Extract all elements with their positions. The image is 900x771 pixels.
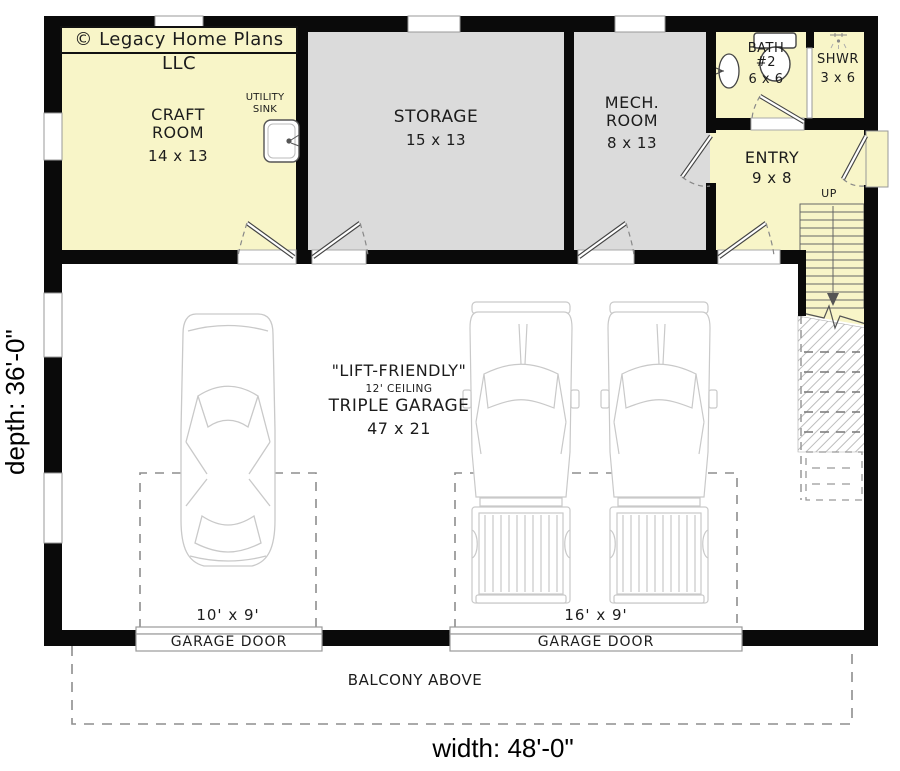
sedan-car: [181, 314, 275, 566]
stairs-break-and-hidden: [798, 306, 866, 500]
floor-plan: © Legacy Home Plans LLC CRAFT ROOM 14 x …: [0, 0, 900, 771]
garage-label: "LIFT-FRIENDLY" 12' CEILING TRIPLE GARAG…: [309, 362, 489, 438]
width-dimension-label: width: 48'-0": [353, 733, 653, 764]
garage-door-right-label: GARAGE DOOR: [450, 634, 742, 651]
entry-label: ENTRY 9 x 8: [722, 149, 822, 188]
garage-door-left-label: GARAGE DOOR: [136, 634, 322, 651]
storage-label: STORAGE 15 x 13: [356, 108, 516, 149]
shower-label: SHWR 3 x 6: [810, 52, 866, 86]
copyright-notice: © Legacy Home Plans LLC: [60, 26, 298, 54]
utility-sink-label: UTILITY SINK: [233, 92, 297, 116]
mech-room-label: MECH. ROOM 8 x 13: [572, 94, 692, 152]
bath-2-label: BATH #2 6 x 6: [733, 42, 799, 87]
utility-sink: [264, 120, 299, 162]
garage-door-left-size: 10' x 9': [168, 606, 288, 624]
balcony-label: BALCONY ABOVE: [335, 672, 495, 689]
side-door-landing: [866, 131, 888, 187]
craft-room-label: CRAFT ROOM 14 x 13: [118, 106, 238, 165]
stairs-up-label: UP: [814, 188, 844, 201]
garage-door-right-size: 16' x 9': [536, 606, 656, 624]
pickup-truck-left: [463, 302, 579, 603]
pickup-truck-right: [601, 302, 717, 603]
depth-dimension-label: depth: 36'-0": [0, 212, 40, 592]
